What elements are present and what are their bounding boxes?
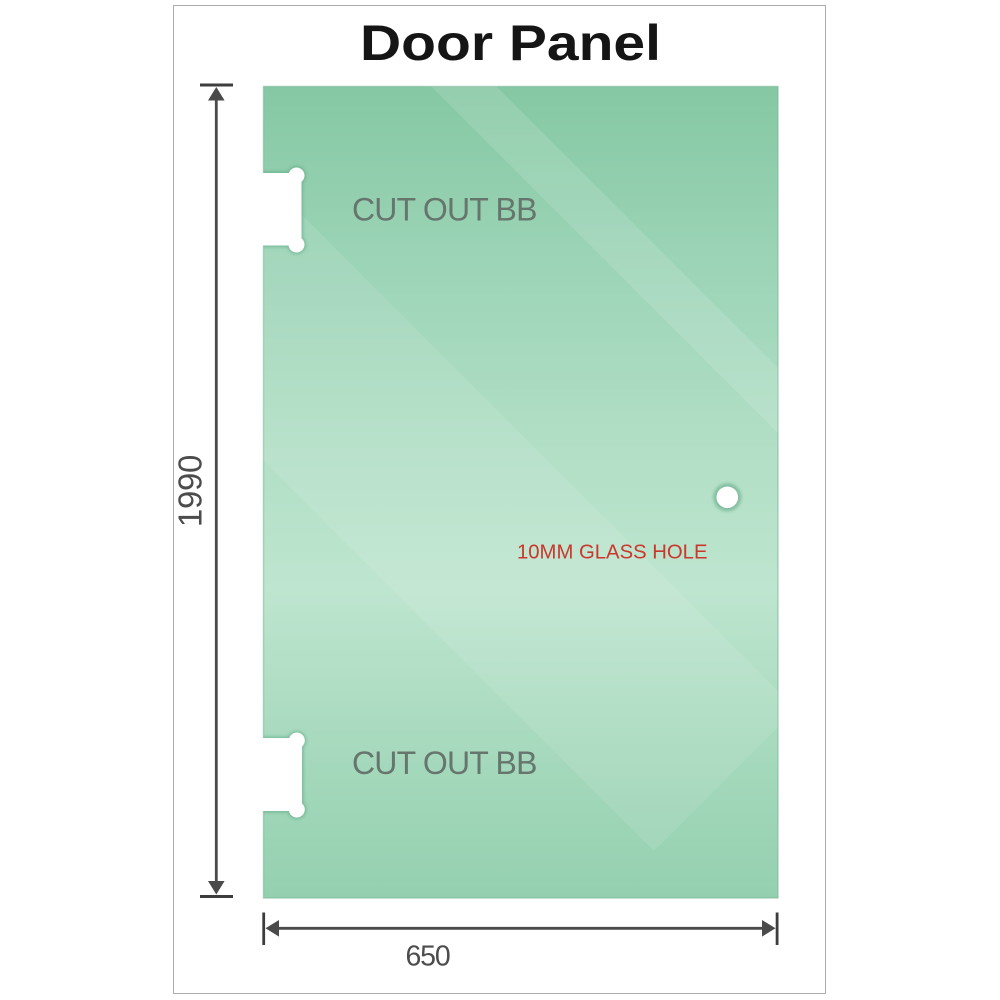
svg-text:1990: 1990: [172, 455, 209, 527]
svg-text:10MM GLASS HOLE: 10MM GLASS HOLE: [517, 542, 707, 564]
svg-text:Door Panel: Door Panel: [360, 15, 661, 71]
svg-text:650: 650: [406, 941, 450, 973]
svg-text:CUT OUT BB: CUT OUT BB: [352, 192, 537, 228]
svg-text:CUT OUT BB: CUT OUT BB: [352, 745, 537, 781]
